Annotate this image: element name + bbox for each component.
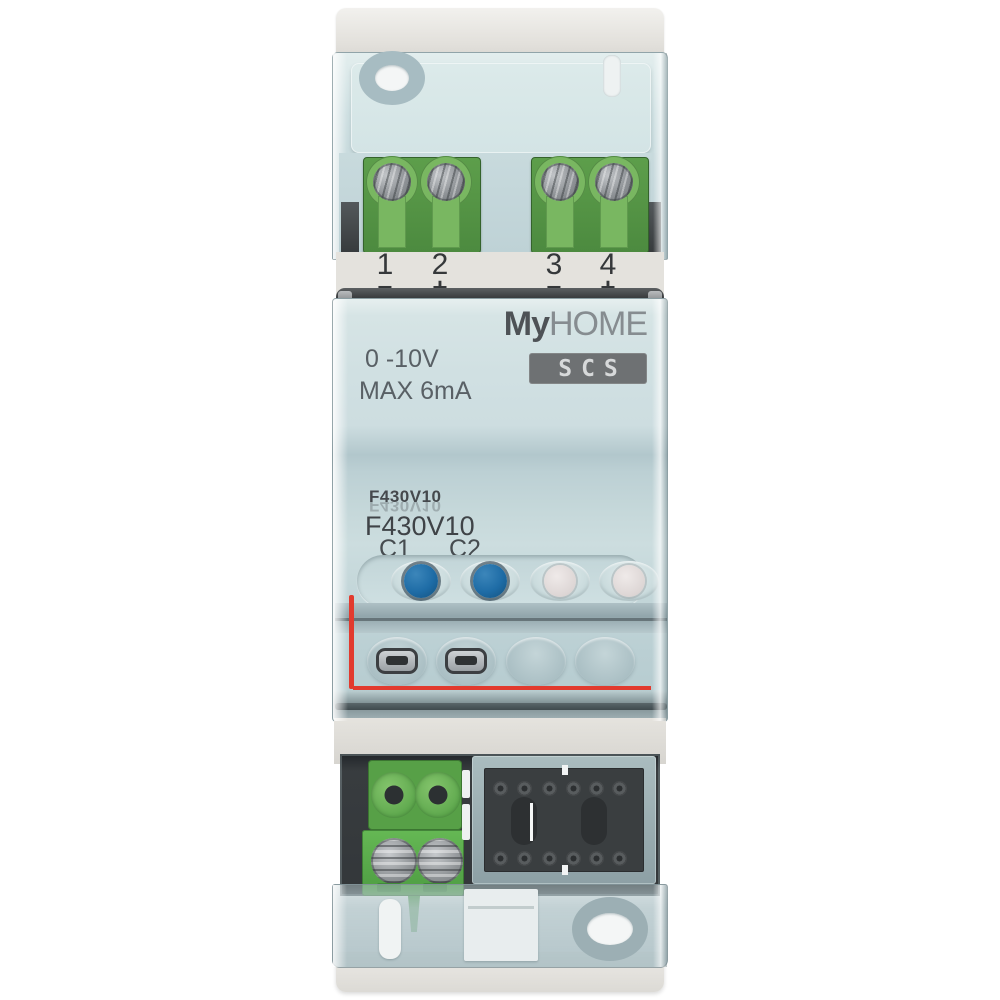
bay-latch-1	[462, 770, 470, 798]
din-rail-module: 1 2 3 4 − + − + MyHOME SCS 0 -10V MAX 6m…	[332, 8, 668, 992]
connector-contact	[589, 781, 604, 796]
front-cover: MyHOME SCS 0 -10V MAX 6mA F430V10 F430V1…	[332, 298, 668, 722]
terminal-4-screw	[595, 163, 633, 201]
scs-bus-label: SCS	[549, 356, 627, 382]
voltage-spec-text: 0 -10V	[365, 345, 439, 374]
config-connector-1	[376, 648, 418, 674]
spare-push-button-2[interactable]	[613, 565, 645, 597]
terminal-1-housing	[366, 156, 418, 208]
button-recess	[357, 555, 645, 607]
terminal-2-housing	[420, 156, 472, 208]
current-spec-text: MAX 6mA	[359, 377, 472, 406]
scs-bus-badge: SCS	[529, 353, 647, 384]
config-socket-2	[436, 637, 496, 685]
bay-latch-2	[462, 804, 470, 840]
terminal-4-wire-slot	[600, 196, 628, 248]
config-socket-1	[367, 637, 427, 685]
cover-divider-line	[335, 618, 667, 621]
connector-contact	[517, 851, 532, 866]
bus-wire-entry-2	[415, 772, 461, 818]
terminal-2-wire-slot	[432, 196, 460, 248]
connector-contact	[542, 781, 557, 796]
expansion-connector	[484, 768, 644, 872]
output-terminal-block-3-4	[531, 157, 649, 254]
product-photo: 1 2 3 4 − + − + MyHOME SCS 0 -10V MAX 6m…	[0, 0, 1000, 1000]
sealing-hole-bottom-opening	[587, 913, 633, 945]
connector-contact	[566, 851, 581, 866]
bottom-cover-slot	[379, 899, 401, 959]
din-release-tab[interactable]	[464, 889, 538, 961]
connector-notch-top	[562, 765, 568, 775]
connector-keyway-2	[581, 797, 607, 845]
red-seal-vertical	[349, 595, 354, 689]
config-socket-4	[575, 637, 635, 685]
terminal-3-wire-slot	[546, 196, 574, 248]
sealing-hole-top	[359, 51, 425, 105]
channel-1-push-button[interactable]	[404, 564, 438, 598]
connector-contact	[493, 851, 508, 866]
connector-keyway-1	[511, 797, 537, 845]
button-well-3	[530, 561, 590, 601]
connector-contact	[612, 781, 627, 796]
expansion-connector-panel	[472, 756, 656, 884]
connector-contact	[493, 781, 508, 796]
connector-contact	[589, 851, 604, 866]
terminal-4-housing	[588, 156, 640, 208]
bus-wire-entry-1	[371, 772, 417, 818]
top-terminal-cover	[332, 52, 668, 260]
sealing-hole-top-opening	[375, 65, 409, 91]
side-rail-left	[341, 202, 359, 256]
brand-logo-light: HOME	[549, 305, 647, 343]
sealing-hole-bottom	[572, 897, 648, 961]
bottom-terminal-cover	[332, 884, 668, 968]
terminal-3-housing	[534, 156, 586, 208]
connector-contact	[542, 851, 557, 866]
button-well-c1	[391, 561, 451, 601]
cover-divider	[335, 603, 667, 633]
button-well-4	[599, 561, 659, 601]
bus-connector-bay	[340, 754, 660, 896]
red-seal-horizontal	[353, 686, 651, 690]
config-socket-3	[506, 637, 566, 685]
bus-screw-2	[417, 838, 463, 884]
terminal-1-wire-slot	[378, 196, 406, 248]
din-release-tab-groove	[468, 906, 534, 909]
connector-contact	[566, 781, 581, 796]
config-connector-2	[445, 648, 487, 674]
bus-screw-1	[371, 838, 417, 884]
bus-wire-entry-block	[368, 760, 462, 830]
output-terminal-block-1-2	[363, 157, 481, 254]
terminal-2-screw	[427, 163, 465, 201]
brand-logo-bold: My	[504, 305, 549, 343]
top-cover-slot	[603, 55, 621, 97]
connector-contact	[517, 781, 532, 796]
bus-wire-hole-1	[385, 786, 404, 805]
channel-2-push-button[interactable]	[473, 564, 507, 598]
spare-push-button-1[interactable]	[544, 565, 576, 597]
brand-logo: MyHOME	[504, 305, 647, 344]
connector-index-mark	[530, 803, 533, 841]
terminal-3-screw	[541, 163, 579, 201]
connector-contact	[612, 851, 627, 866]
connector-notch-bottom	[562, 865, 568, 875]
bus-wire-hole-2	[429, 786, 448, 805]
terminal-1-screw	[373, 163, 411, 201]
cover-bottom-edge-line	[335, 703, 667, 710]
button-well-c2	[460, 561, 520, 601]
cover-bottom-edge	[333, 691, 668, 721]
